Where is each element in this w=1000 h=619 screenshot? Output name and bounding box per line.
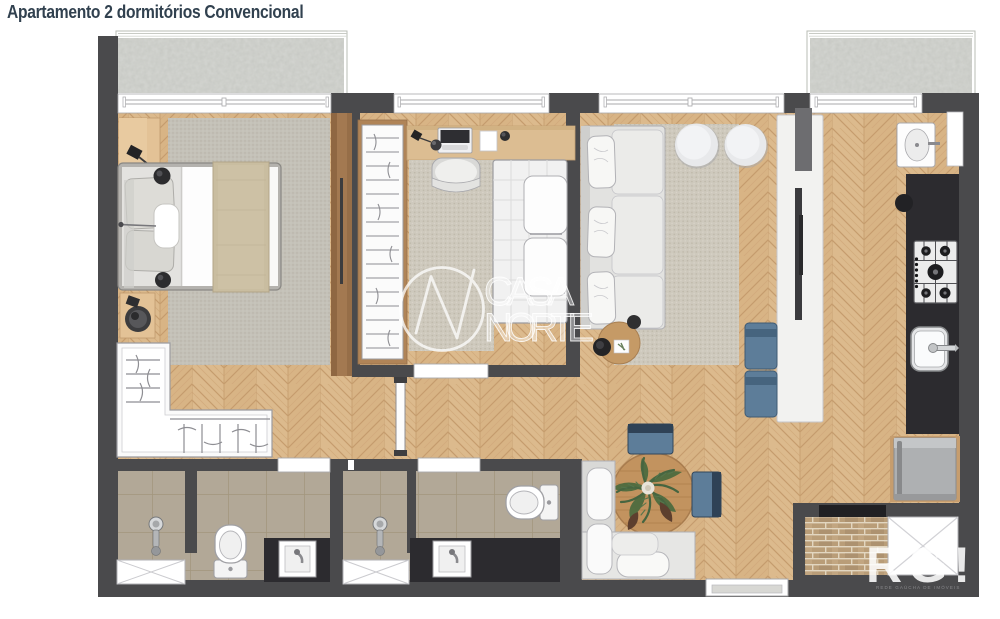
svg-text:REDE GAÚCHA DE IMÓVEIS: REDE GAÚCHA DE IMÓVEIS — [876, 584, 960, 590]
svg-text:NORTE: NORTE — [484, 306, 596, 350]
